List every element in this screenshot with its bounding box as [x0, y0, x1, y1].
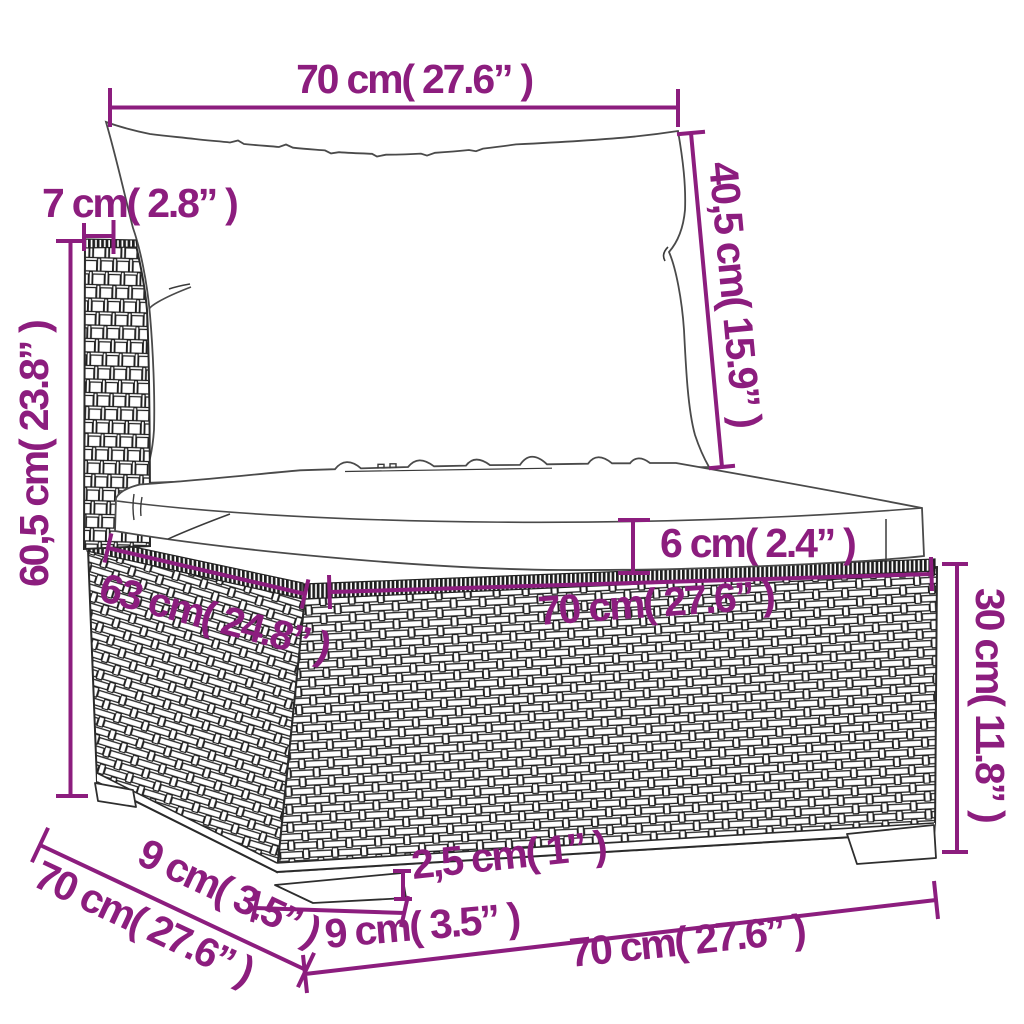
svg-text:7 cm( 2.8” ): 7 cm( 2.8” )	[42, 180, 237, 226]
svg-text:60,5 cm( 23.8” ): 60,5 cm( 23.8” )	[11, 321, 57, 587]
svg-text:30 cm( 11.8” ): 30 cm( 11.8” )	[967, 588, 1013, 822]
svg-text:70 cm( 27.6” ): 70 cm( 27.6” )	[296, 56, 532, 102]
svg-text:6 cm( 2.4” ): 6 cm( 2.4” )	[660, 520, 855, 566]
